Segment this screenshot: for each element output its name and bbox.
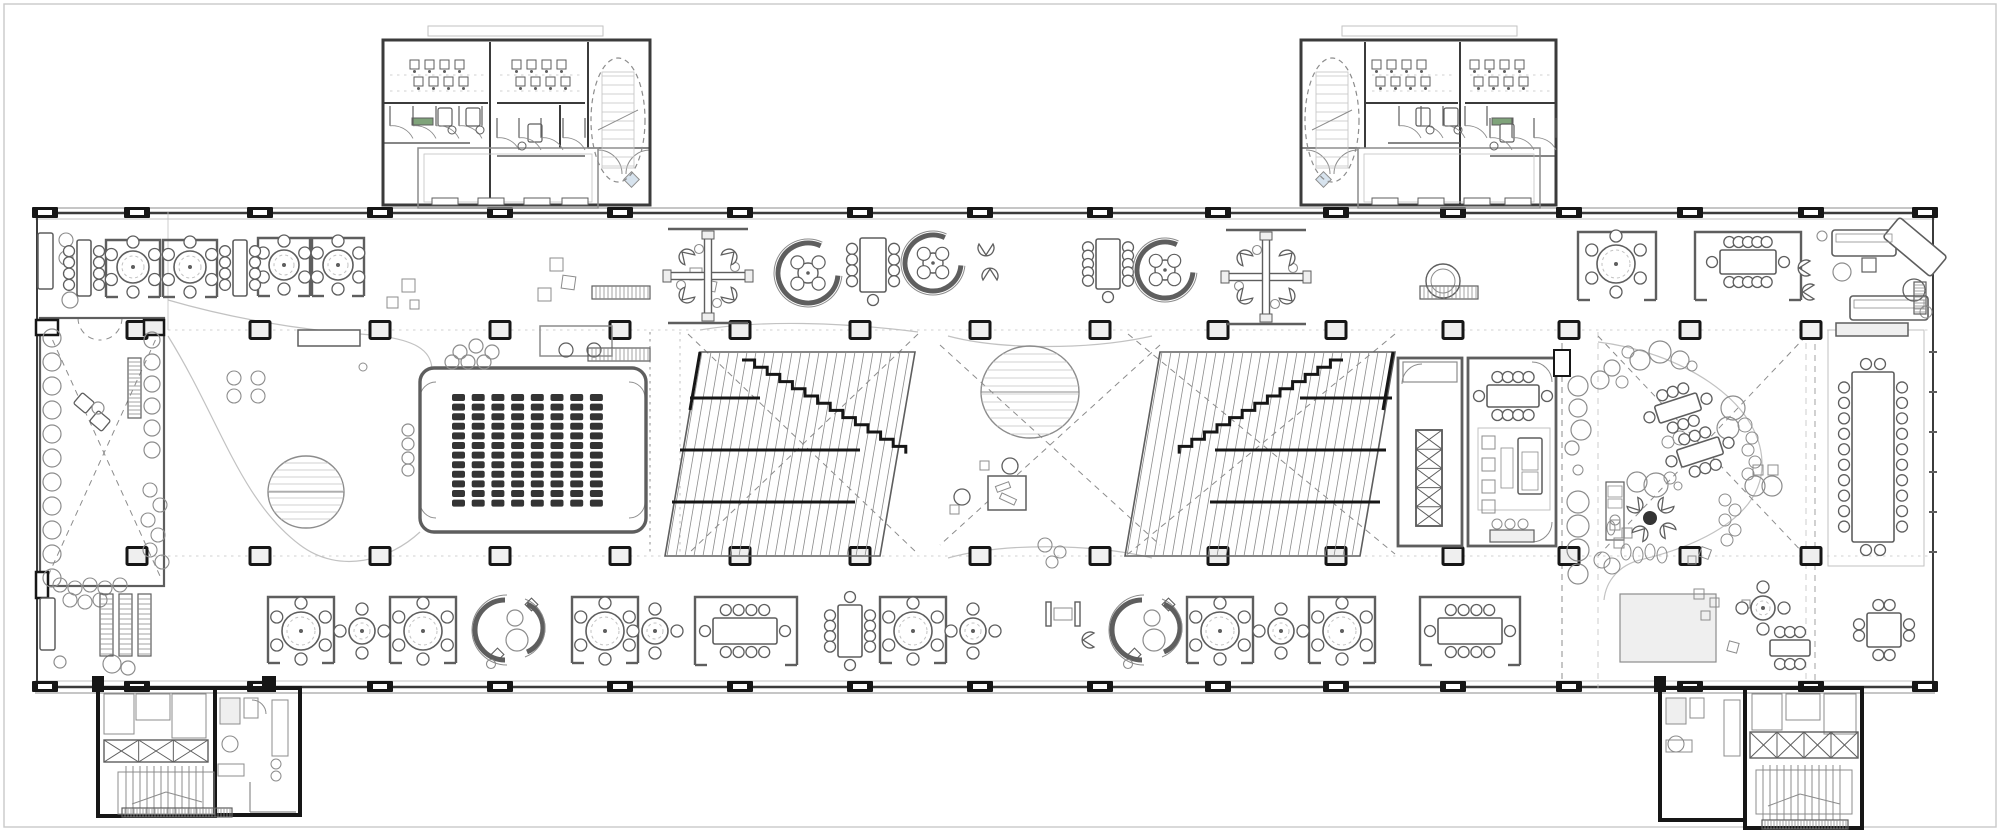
plan-element (218, 764, 244, 776)
rect-table (847, 238, 900, 306)
chair (1875, 359, 1886, 370)
chair (720, 647, 731, 658)
chair (1190, 611, 1202, 623)
chair (378, 625, 390, 637)
plant-or-stool (485, 345, 499, 359)
auditorium-seat (531, 461, 544, 468)
chair (295, 597, 307, 609)
plan-line (820, 352, 855, 556)
plant-or-stool (954, 489, 970, 505)
plan-element (73, 392, 94, 413)
stall-door-arc (390, 126, 413, 139)
desk-chair (1503, 70, 1506, 73)
plan-element (980, 461, 989, 470)
desk-chair (1409, 87, 1412, 90)
chair (847, 243, 858, 254)
auditorium-seat (590, 452, 603, 459)
wall-column (1323, 207, 1349, 218)
path-line (420, 502, 436, 518)
plant-or-stool (54, 656, 66, 668)
auditorium-seat (531, 423, 544, 430)
column-box (1801, 548, 1821, 565)
bleacher-stair (1125, 352, 1395, 556)
chair (746, 647, 757, 658)
table-top (77, 240, 91, 296)
hatched-bench (119, 594, 132, 656)
auditorium-seat (590, 461, 603, 468)
lounge-chair (1631, 523, 1651, 542)
chair (812, 277, 825, 290)
wall-column-core (853, 210, 867, 215)
wall-line (1800, 794, 1840, 804)
wall-column (1556, 681, 1582, 692)
desk (1417, 60, 1426, 69)
plan-line (712, 352, 747, 556)
auditorium-seat (511, 461, 524, 468)
chair (825, 620, 836, 631)
chair-shape (1798, 260, 1810, 276)
plan-line (1217, 352, 1252, 556)
chair (1757, 581, 1769, 593)
chair (319, 639, 331, 651)
plan-element (1620, 594, 1716, 662)
auditorium-seat (570, 500, 583, 507)
plant-or-stool (1833, 263, 1851, 281)
chair (1875, 545, 1886, 556)
auditorium-seat (570, 394, 583, 401)
chair (791, 256, 804, 269)
chair (1474, 391, 1485, 402)
plan-element (1046, 602, 1051, 626)
plant-or-stool (476, 126, 484, 134)
desk-chair (1507, 87, 1510, 90)
column-box (1801, 322, 1821, 339)
booth-seating (1133, 238, 1197, 302)
plan-line (1312, 110, 1352, 130)
wall-column (1912, 207, 1938, 218)
plant-or-stool (1687, 361, 1697, 371)
table-top (1770, 640, 1810, 656)
plan-line (1383, 352, 1393, 410)
desk (512, 60, 521, 69)
column-box (1443, 548, 1463, 565)
restroom-stalls (1399, 106, 1487, 138)
desk (1500, 60, 1509, 69)
hatched-bench (592, 286, 650, 299)
plan-element (1505, 198, 1531, 205)
desk (429, 77, 438, 86)
chair (845, 592, 856, 603)
plant-or-stool (271, 759, 281, 769)
pod-stool (695, 245, 704, 254)
auditorium-seat (472, 490, 485, 497)
plant (43, 401, 61, 419)
plant (43, 425, 61, 443)
plan-element (104, 694, 134, 734)
auditorium-seat (551, 480, 564, 487)
table-top (838, 605, 862, 657)
column-box (610, 322, 630, 339)
plant-or-stool (1717, 417, 1739, 439)
chair-shape (1657, 520, 1677, 539)
chair (64, 279, 75, 290)
chair (1778, 602, 1790, 614)
desk (410, 60, 419, 69)
plant-or-stool (1046, 556, 1058, 568)
chair (162, 249, 174, 261)
chair (746, 605, 757, 616)
auditorium-seat (472, 432, 485, 439)
column-box (490, 322, 510, 339)
plan-line (1325, 352, 1360, 556)
chair (332, 235, 344, 247)
plan-line (811, 352, 846, 556)
plant (43, 449, 61, 467)
rect-table (1839, 359, 1908, 556)
plan-element (172, 694, 206, 738)
plant-or-stool (1719, 494, 1731, 506)
auditorium-seat (452, 452, 465, 459)
stall-door-arc (459, 126, 482, 139)
auditorium (420, 368, 646, 532)
wall-column-core (373, 210, 387, 215)
chair (1312, 611, 1324, 623)
chair-shape (1279, 288, 1299, 308)
plant-or-stool (1729, 504, 1741, 516)
chair (649, 603, 661, 615)
table-top (1867, 613, 1901, 647)
plan-element (1724, 700, 1740, 756)
plant (144, 354, 160, 370)
chair (889, 276, 900, 287)
rect-table (220, 240, 261, 296)
chair (1634, 272, 1646, 284)
chair (1297, 625, 1309, 637)
plant-or-stool (1426, 126, 1434, 134)
plant-or-stool (1643, 511, 1657, 525)
bleacher-stair (665, 352, 915, 556)
bench-outline (128, 358, 141, 418)
desk (1485, 60, 1494, 69)
bench-outline (588, 348, 650, 361)
plant-or-stool (453, 345, 467, 359)
lounge-table (507, 610, 523, 626)
plant-or-stool (1568, 564, 1588, 584)
desk-chair (443, 70, 446, 73)
round-table (883, 597, 943, 665)
lounge-table (1143, 629, 1165, 651)
wall-column-core (1683, 210, 1697, 215)
chair (353, 271, 365, 283)
desk (414, 77, 423, 86)
desk (531, 77, 540, 86)
chair (889, 265, 900, 276)
chair (1238, 611, 1250, 623)
plan-line (667, 352, 702, 556)
column-box (127, 548, 147, 565)
chair (967, 647, 979, 659)
plan-line (1154, 352, 1189, 556)
auditorium-seat (452, 471, 465, 478)
plan-line (829, 352, 864, 556)
wall-column (727, 681, 753, 692)
chair (299, 271, 311, 283)
chair (162, 274, 174, 286)
chair (1707, 257, 1718, 268)
auditorium-seat (472, 471, 485, 478)
plant-or-stool (402, 464, 414, 476)
table-top (860, 238, 886, 292)
auditorium-seat (452, 500, 465, 507)
round-table (1312, 597, 1372, 665)
plant-or-stool (1604, 558, 1620, 574)
desk-chair (560, 70, 563, 73)
chair (1610, 230, 1622, 242)
auditorium-seat (472, 442, 485, 449)
plan-element (950, 505, 959, 514)
wall-column-core (493, 684, 507, 689)
chair (1839, 506, 1850, 517)
wall-column (727, 207, 753, 218)
plant-or-stool (1721, 534, 1733, 546)
chair (847, 276, 858, 287)
desk-chair (413, 70, 416, 73)
chair (1238, 639, 1250, 651)
table-dot (188, 265, 192, 269)
desk-chair (1518, 70, 1521, 73)
chair (917, 247, 930, 260)
chair (1471, 647, 1482, 658)
desk (1470, 60, 1479, 69)
chair-shape (1631, 523, 1651, 542)
wall-column (1087, 681, 1113, 692)
column (250, 322, 270, 339)
pod-stool (1253, 246, 1262, 255)
plan-rect (1303, 271, 1311, 283)
auditorium-seat (452, 432, 465, 439)
auditorium-seat (551, 404, 564, 411)
wall-line (166, 792, 202, 802)
column (370, 548, 390, 565)
building-walls (35, 42, 1937, 812)
column (1559, 322, 1579, 339)
tiered-circle (981, 346, 1079, 438)
plan-element (988, 476, 1026, 510)
chair (64, 246, 75, 257)
column (370, 322, 390, 339)
chair (575, 611, 587, 623)
floor-plan-canvas (0, 0, 2000, 831)
column (1443, 548, 1463, 565)
chair (845, 660, 856, 671)
rect-table (825, 592, 876, 671)
chair (1779, 257, 1790, 268)
table-dot (1279, 629, 1283, 633)
wall-column (1440, 681, 1466, 692)
auditorium-seat (551, 490, 564, 497)
chair (599, 597, 611, 609)
auditorium-seat (590, 500, 603, 507)
auditorium-seat (511, 452, 524, 459)
auditorium-seat (452, 404, 465, 411)
plan-rect (702, 231, 714, 239)
chair (184, 286, 196, 298)
plan-line (1307, 352, 1342, 556)
round-table (575, 597, 635, 665)
plant-or-stool (151, 528, 165, 542)
plant-or-stool (1591, 371, 1609, 389)
chair (883, 639, 895, 651)
plan-line (1352, 352, 1387, 556)
chair (1897, 428, 1908, 439)
column (1680, 322, 1700, 339)
wall-column-core (1918, 210, 1932, 215)
plan-element (1501, 448, 1513, 488)
desk (1474, 77, 1483, 86)
chair (1586, 244, 1598, 256)
plan-element (1418, 198, 1444, 205)
chair (825, 631, 836, 642)
chair (1839, 459, 1850, 470)
auditorium-seat (551, 413, 564, 420)
chair (1785, 627, 1796, 638)
plan-element (438, 108, 452, 126)
plan-element (1342, 26, 1517, 36)
path-line (100, 318, 122, 340)
chair (250, 257, 261, 268)
plant-or-stool (1571, 420, 1591, 440)
plant-or-stool (1054, 546, 1066, 558)
column-box (250, 548, 270, 565)
auditorium-seat (531, 442, 544, 449)
plant (43, 473, 61, 491)
chair (1757, 623, 1769, 635)
auditorium-seat (590, 490, 603, 497)
chair (94, 257, 105, 268)
pod-bar-v (705, 238, 712, 314)
chair (1425, 626, 1436, 637)
table-dot (911, 629, 915, 633)
plan-element (550, 258, 563, 271)
plan-element (1482, 500, 1495, 513)
plant-or-stool (1567, 491, 1589, 513)
column (490, 548, 510, 565)
plan-line (1190, 352, 1225, 556)
plant-or-stool (1569, 399, 1587, 417)
desk-chair (1390, 70, 1393, 73)
lounge-chair (1082, 632, 1094, 648)
wall-column-core (1093, 210, 1107, 215)
plant-or-stool (1817, 231, 1827, 241)
plan-element (410, 300, 419, 309)
plan-element (1075, 602, 1080, 626)
plant-or-stool (141, 513, 155, 527)
wall-column (32, 681, 58, 692)
plan-element (412, 118, 433, 125)
chair (206, 274, 218, 286)
auditorium-seat (491, 471, 504, 478)
wall-column (967, 207, 993, 218)
plan-element (478, 198, 504, 205)
plan-rect (745, 270, 753, 282)
plan-rect (663, 270, 671, 282)
chair (1897, 459, 1908, 470)
plant-or-stool (251, 371, 265, 385)
plan-line (1163, 352, 1198, 556)
round-table (105, 236, 160, 298)
plant-or-stool (1729, 524, 1741, 536)
plant-or-stool (1749, 456, 1761, 468)
auditorium-walls (420, 368, 646, 532)
bench-outline (138, 594, 151, 656)
chair (417, 653, 429, 665)
column-box (1090, 322, 1110, 339)
plan-element (92, 676, 104, 692)
chair-shape (1802, 284, 1814, 300)
chair-shape (978, 244, 994, 256)
plan-line (1199, 352, 1234, 556)
chair (311, 271, 323, 283)
wall-column-core (1211, 684, 1225, 689)
round-table (257, 235, 311, 295)
plant-or-stool (1668, 736, 1684, 752)
chair (889, 254, 900, 265)
chair (1839, 397, 1850, 408)
plan-element (298, 330, 360, 346)
booth-dot (806, 271, 810, 275)
chair (334, 625, 346, 637)
plant-or-stool (1719, 514, 1731, 526)
table-dot (1761, 606, 1765, 610)
sofa-lounge (472, 595, 545, 669)
plan-line (1226, 352, 1261, 556)
bench-outline (119, 594, 132, 656)
column (970, 322, 990, 339)
plan-element (36, 320, 58, 335)
plan-element (1727, 641, 1739, 653)
chair (907, 597, 919, 609)
auditorium-seat (570, 452, 583, 459)
auditorium-seat (472, 500, 485, 507)
auditorium-seat (472, 461, 485, 468)
lounge-chair (676, 246, 696, 266)
plan-element (1666, 740, 1692, 752)
plan-element (220, 698, 240, 724)
auditorium-seat (472, 423, 485, 430)
chair (931, 611, 943, 623)
chair (1904, 619, 1915, 630)
plan-line (685, 352, 720, 556)
chair (1897, 490, 1908, 501)
auditorium-seat (570, 423, 583, 430)
chair-shape (982, 268, 998, 280)
chair (1586, 272, 1598, 284)
plant-or-stool (518, 142, 526, 150)
plan-element (1372, 198, 1398, 205)
wall-column-core (1329, 210, 1343, 215)
chair (319, 611, 331, 623)
wall-column (1798, 207, 1824, 218)
desk-chair (1473, 70, 1476, 73)
chair (1123, 275, 1134, 286)
wall-column-core (1093, 684, 1107, 689)
chair (847, 265, 858, 276)
chair (64, 268, 75, 279)
chair (1168, 254, 1181, 267)
chair (417, 597, 429, 609)
stool-oval (1621, 544, 1631, 560)
table-dot (299, 629, 303, 633)
